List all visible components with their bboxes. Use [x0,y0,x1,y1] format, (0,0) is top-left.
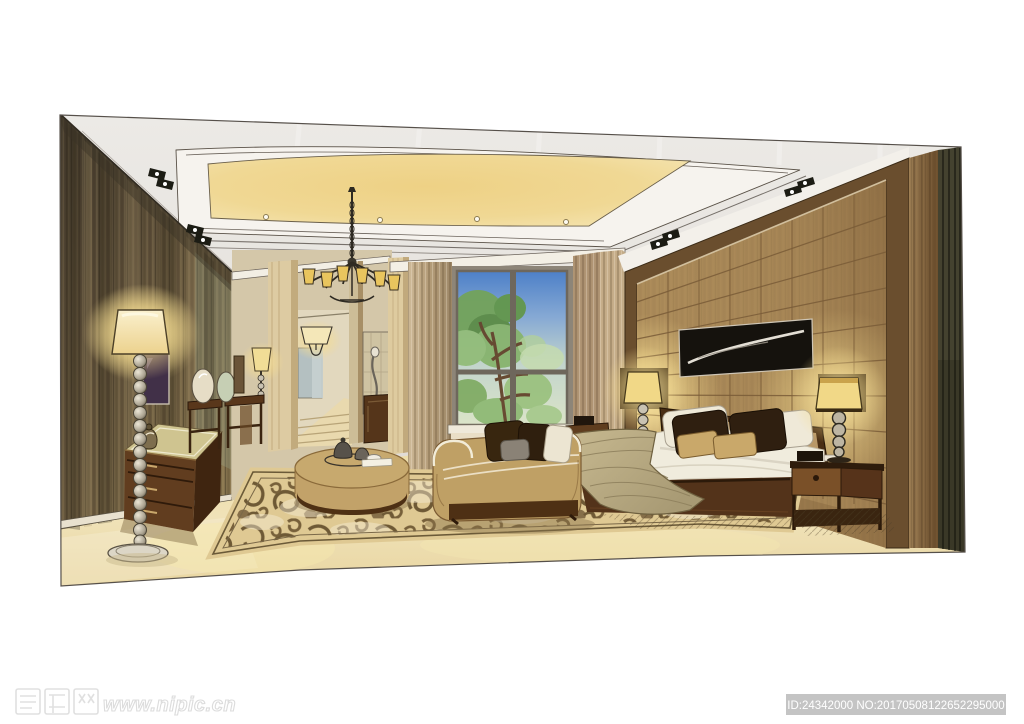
svg-text:www.nipic.cn: www.nipic.cn [103,694,236,716]
svg-text:ID:24342000 NO:201705081226522: ID:24342000 NO:20170508122652295000 [787,700,1004,712]
